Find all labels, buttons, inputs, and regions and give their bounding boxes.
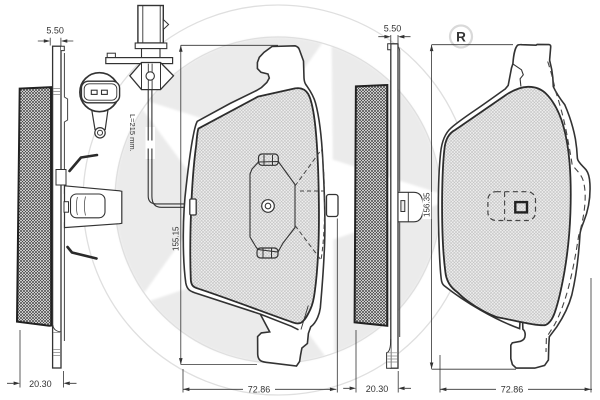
svg-text:156.35: 156.35 (423, 192, 432, 217)
svg-text:20.30: 20.30 (366, 384, 389, 394)
svg-text:20.30: 20.30 (29, 379, 52, 389)
svg-text:5.50: 5.50 (46, 26, 64, 36)
svg-text:L=215 mm.: L=215 mm. (128, 114, 137, 152)
svg-text:72.86: 72.86 (501, 385, 524, 395)
svg-text:5.50: 5.50 (384, 24, 402, 34)
svg-text:155.15: 155.15 (172, 226, 181, 251)
svg-text:R: R (456, 30, 466, 45)
svg-text:72.86: 72.86 (248, 385, 271, 395)
